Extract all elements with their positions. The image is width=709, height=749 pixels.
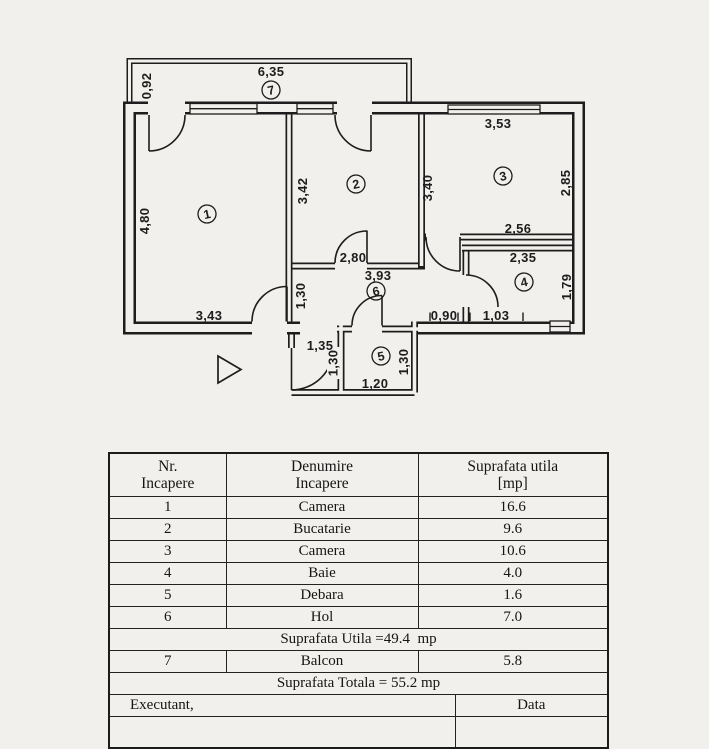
suprafata-totala-text: Suprafata Totala = 55.2 mp [109, 673, 608, 695]
svg-text:6: 6 [371, 284, 381, 299]
floor-plan: 6,35 0,92 3,53 2,85 3,42 3,40 4,80 2,56 … [0, 0, 709, 440]
executant-label: Executant, [109, 695, 455, 717]
dim-label: 0,92 [139, 73, 154, 100]
table-row: 1 Camera 16.6 [109, 497, 608, 519]
header-line: Suprafata utila [467, 458, 558, 475]
dim-label: 6,35 [258, 64, 285, 79]
door-arc [252, 287, 287, 322]
cell-area: 16.6 [418, 497, 608, 519]
header-line: Nr. [158, 458, 177, 475]
room-number-3: 3 [492, 165, 513, 186]
balcon-row: 7 Balcon 5.8 [109, 651, 608, 673]
room-areas-table: Nr. Incapere Denumire Incapere Suprafata… [108, 452, 609, 749]
svg-text:1: 1 [202, 207, 212, 222]
cell-area: 4.0 [418, 563, 608, 585]
cell-nr: 4 [109, 563, 226, 585]
svg-text:5: 5 [376, 349, 386, 364]
svg-text:7: 7 [266, 83, 276, 98]
cell-area: 5.8 [418, 651, 608, 673]
header-line: Incapere [295, 475, 348, 492]
cell-nr: 3 [109, 541, 226, 563]
room-number-7: 7 [260, 79, 281, 100]
cell-name: Hol [226, 607, 418, 629]
data-value-cell [455, 717, 608, 749]
dim-label: 3,53 [485, 116, 512, 131]
signature-row: Executant, Data [109, 695, 608, 717]
door-arc [149, 115, 185, 151]
suprafata-utila-row: Suprafata Utila =49.4 mp [109, 629, 608, 651]
svg-text:3: 3 [498, 169, 508, 184]
cell-name: Camera [226, 541, 418, 563]
table-header-row: Nr. Incapere Denumire Incapere Suprafata… [109, 453, 608, 497]
dim-label: 3,40 [420, 175, 435, 202]
direction-arrow-icon [218, 356, 241, 383]
door-arc [426, 237, 460, 271]
header-line: [mp] [498, 475, 528, 492]
scanned-sheet: 6,35 0,92 3,53 2,85 3,42 3,40 4,80 2,56 … [0, 0, 709, 720]
data-label: Data [455, 695, 608, 717]
exterior-walls [123, 102, 585, 335]
cell-name: Balcon [226, 651, 418, 673]
dim-label: 2,85 [558, 170, 573, 197]
header-denumire: Denumire Incapere [226, 453, 418, 497]
room-number-4: 4 [513, 271, 534, 292]
cell-nr: 7 [109, 651, 226, 673]
suprafata-totala-row: Suprafata Totala = 55.2 mp [109, 673, 608, 695]
dim-label: 1,30 [326, 350, 341, 377]
cell-area: 1.6 [418, 585, 608, 607]
dim-label: 2,80 [340, 250, 367, 265]
dim-label: 3,93 [365, 268, 392, 283]
cell-nr: 5 [109, 585, 226, 607]
svg-text:4: 4 [519, 275, 529, 290]
dim-label: 3,42 [295, 178, 310, 205]
cell-name: Bucatarie [226, 519, 418, 541]
executant-signature-cell [109, 717, 455, 749]
cell-name: Baie [226, 563, 418, 585]
cell-area: 9.6 [418, 519, 608, 541]
cell-nr: 2 [109, 519, 226, 541]
dim-label: 0,90 [431, 308, 458, 323]
door-arc [335, 115, 371, 151]
room-number-1: 1 [196, 203, 217, 224]
cell-nr: 6 [109, 607, 226, 629]
dim-label: 2,35 [510, 250, 537, 265]
signature-empty-row [109, 717, 608, 749]
header-nr-incapere: Nr. Incapere [109, 453, 226, 497]
cell-name: Camera [226, 497, 418, 519]
room-number-5: 5 [370, 345, 391, 366]
header-suprafata: Suprafata utila [mp] [418, 453, 608, 497]
cell-nr: 1 [109, 497, 226, 519]
cell-name: Debara [226, 585, 418, 607]
cell-area: 10.6 [418, 541, 608, 563]
dim-label: 1,30 [293, 283, 308, 310]
dim-label: 4,80 [137, 208, 152, 235]
dim-label: 1,30 [396, 349, 411, 376]
dim-label: 2,56 [505, 221, 532, 236]
table-row: 3 Camera 10.6 [109, 541, 608, 563]
header-line: Denumire [291, 458, 353, 475]
svg-text:2: 2 [351, 177, 361, 192]
dim-label: 1,03 [483, 308, 510, 323]
dim-label: 3,43 [196, 308, 223, 323]
cell-area: 7.0 [418, 607, 608, 629]
dim-label: 1,20 [362, 376, 389, 391]
table-row: 2 Bucatarie 9.6 [109, 519, 608, 541]
dim-label: 1,79 [559, 274, 574, 301]
suprafata-utila-text: Suprafata Utila =49.4 mp [109, 629, 608, 651]
door-arc [466, 275, 498, 307]
header-line: Incapere [141, 475, 194, 492]
table-row: 4 Baie 4.0 [109, 563, 608, 585]
table-row: 6 Hol 7.0 [109, 607, 608, 629]
exterior-walls-core [128, 104, 581, 332]
table-row: 5 Debara 1.6 [109, 585, 608, 607]
room-number-2: 2 [345, 173, 366, 194]
